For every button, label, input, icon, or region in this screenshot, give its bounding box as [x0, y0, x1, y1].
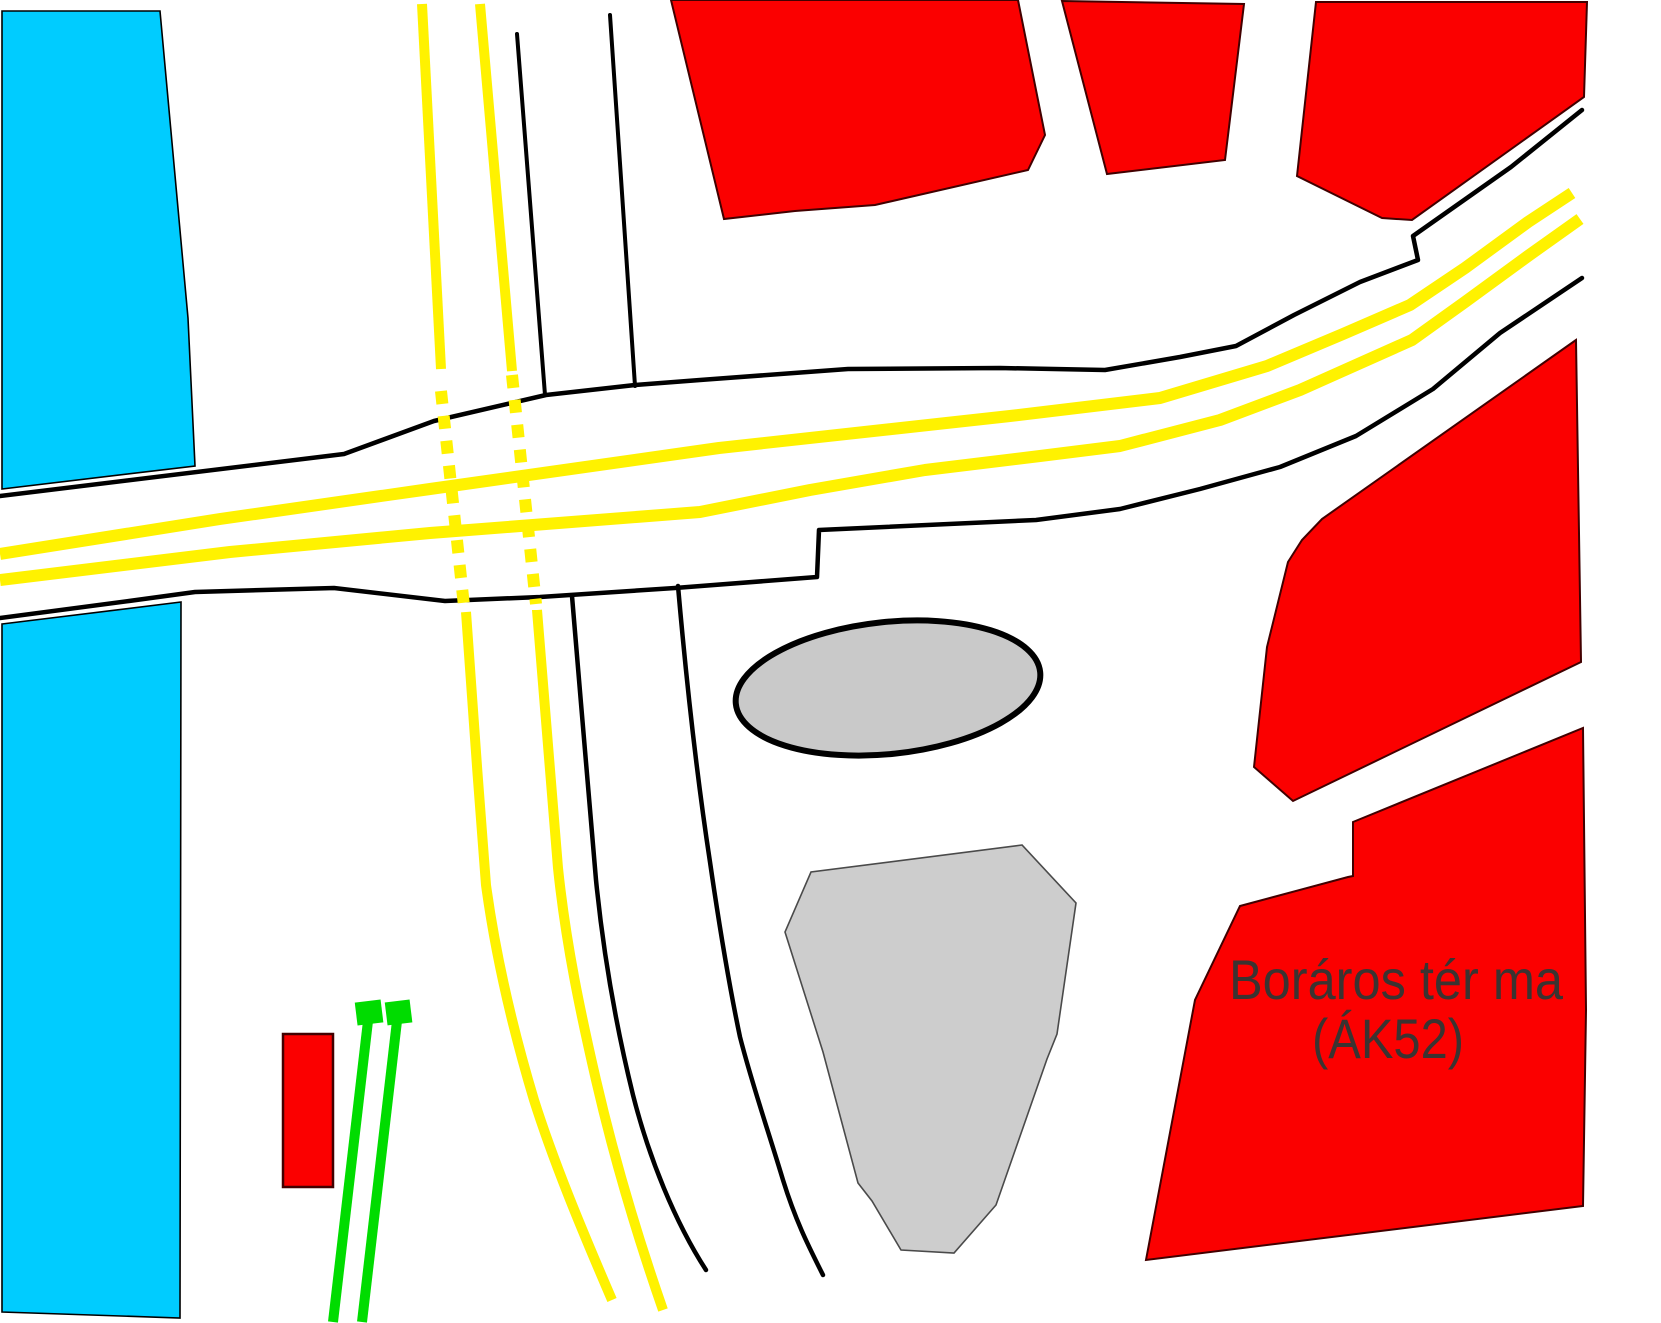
svg-text:Boráros tér ma: Boráros tér ma — [1229, 948, 1564, 1011]
svg-text:(ÁK52): (ÁK52) — [1312, 1007, 1464, 1070]
